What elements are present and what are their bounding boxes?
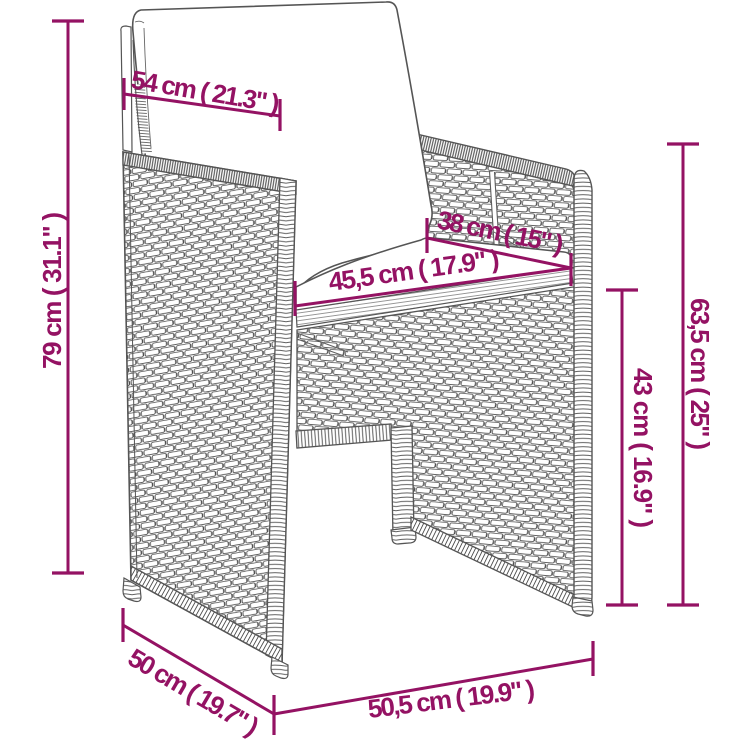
svg-text:50,5 cm ( 19.9" ): 50,5 cm ( 19.9" ) (366, 674, 536, 724)
svg-text:50 cm ( 19.7" ): 50 cm ( 19.7" ) (123, 642, 264, 742)
svg-text:63,5 cm ( 25" ): 63,5 cm ( 25" ) (685, 298, 715, 450)
svg-text:43 cm ( 16.9" ): 43 cm ( 16.9" ) (628, 368, 658, 528)
svg-text:79 cm ( 31.1" ): 79 cm ( 31.1" ) (37, 212, 67, 369)
